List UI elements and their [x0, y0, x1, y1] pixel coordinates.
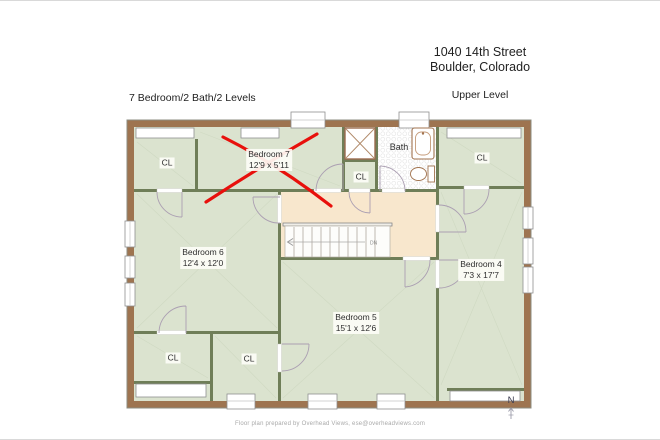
room-label-bedroom-6: Bedroom 6 12'4 x 12'0 — [180, 247, 226, 269]
level-label: Upper Level — [400, 89, 560, 101]
bathtub — [412, 128, 434, 159]
north-arrow-icon — [506, 406, 516, 420]
staircase: DN — [283, 223, 392, 257]
stairs-dn-label: DN — [370, 241, 378, 247]
bedroom-6-name: Bedroom 6 — [182, 247, 224, 258]
bedroom-5-name: Bedroom 5 — [335, 312, 377, 323]
toilet — [411, 166, 435, 182]
room-label-bedroom-4: Bedroom 4 7'3 x 17'7 — [458, 259, 504, 281]
address-line-1: 1040 14th Street — [400, 45, 560, 60]
preparer-credit: Floor plan prepared by Overhead Views, e… — [0, 421, 660, 427]
floor-plan-page: 7 Bedroom/2 Bath/2 Levels 1040 14th Stre… — [0, 0, 660, 440]
room-label-closet-bottom-mid: CL — [242, 353, 257, 364]
bedroom-5-dims: 15'1 x 12'6 — [335, 323, 377, 334]
property-address: 1040 14th Street Boulder, Colorado — [400, 45, 560, 75]
bedroom-6-dims: 12'4 x 12'0 — [182, 258, 224, 269]
room-label-closet-top-left: CL — [160, 157, 175, 168]
room-label-bedroom-5: Bedroom 5 15'1 x 12'6 — [333, 312, 379, 334]
address-line-2: Boulder, Colorado — [400, 60, 560, 75]
north-label: N — [499, 396, 523, 406]
room-label-bedroom-7: Bedroom 7 12'9 x 5'11 — [246, 149, 292, 171]
property-summary: 7 Bedroom/2 Bath/2 Levels — [129, 92, 256, 104]
shower — [345, 128, 375, 159]
bedroom-4-dims: 7'3 x 17'7 — [460, 270, 502, 281]
floor-plan: DN — [127, 120, 531, 408]
bedroom-4-name: Bedroom 4 — [460, 259, 502, 270]
bedroom-7-dims: 12'9 x 5'11 — [248, 160, 290, 171]
room-label-closet-top-right: CL — [475, 152, 490, 163]
room-label-closet-bottom-left: CL — [166, 352, 181, 363]
room-label-closet-middle: CL — [354, 171, 369, 182]
room-label-bath: Bath — [388, 142, 411, 154]
bedroom-7-name: Bedroom 7 — [248, 149, 290, 160]
